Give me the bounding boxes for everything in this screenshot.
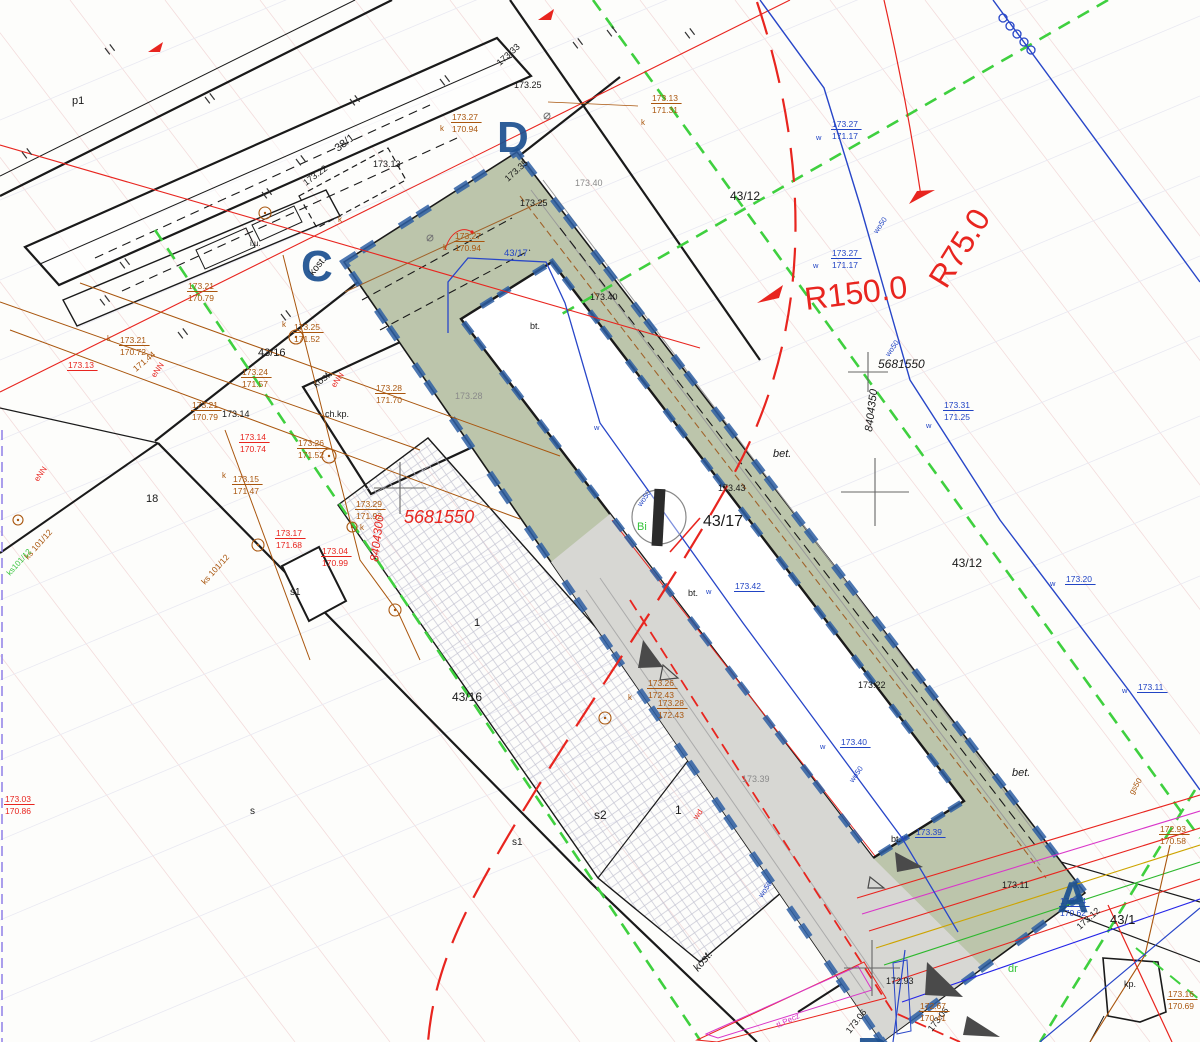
corner-marker-D: D: [497, 113, 529, 162]
svg-text:bt.: bt.: [688, 588, 698, 598]
map-label: bt.: [688, 588, 698, 598]
svg-text:173.40: 173.40: [841, 737, 867, 747]
svg-text:1: 1: [474, 617, 480, 629]
corner-marker-A: A: [1057, 873, 1089, 922]
svg-text:173.24: 173.24: [242, 367, 268, 377]
map-label: bet.: [773, 448, 791, 460]
svg-text:w: w: [705, 587, 712, 596]
svg-text:ch.kp.: ch.kp.: [325, 409, 349, 419]
map-label: 173.28: [455, 391, 483, 401]
svg-text:172.43: 172.43: [658, 710, 684, 720]
map-label: s2: [594, 808, 607, 822]
map-label: ch.kp.: [325, 409, 349, 419]
svg-text:5681550: 5681550: [404, 507, 474, 527]
svg-text:173.17: 173.17: [276, 528, 302, 538]
svg-text:1: 1: [675, 803, 682, 817]
map-label: 173.13: [373, 159, 401, 169]
map-label: 5681550: [404, 507, 474, 527]
svg-text:170.74: 170.74: [240, 444, 266, 454]
svg-text:173.26: 173.26: [298, 438, 324, 448]
svg-text:i.u.: i.u.: [250, 239, 261, 248]
map-label: s1: [290, 587, 301, 598]
svg-text:bt.: bt.: [891, 834, 901, 844]
svg-text:171.68: 171.68: [276, 540, 302, 550]
map-label: 43/16: [258, 347, 286, 359]
svg-text:173.28: 173.28: [455, 391, 483, 401]
svg-text:5681550: 5681550: [878, 357, 925, 371]
svg-text:173.40: 173.40: [590, 292, 618, 302]
map-label: 173.39: [915, 827, 946, 838]
svg-text:173.11: 173.11: [1138, 682, 1164, 692]
manhole-center: [394, 609, 396, 611]
svg-text:171.31: 171.31: [652, 105, 678, 115]
manhole-center: [351, 526, 353, 528]
map-label: 18: [146, 493, 158, 505]
map-label: s: [250, 806, 255, 817]
svg-text:173.28: 173.28: [376, 383, 402, 393]
svg-text:172.93: 172.93: [1160, 824, 1186, 834]
svg-text:173.42: 173.42: [735, 581, 761, 591]
manhole-center: [264, 212, 266, 214]
svg-text:173.20: 173.20: [1066, 574, 1092, 584]
svg-text:w: w: [1121, 686, 1128, 695]
manhole-center: [17, 519, 19, 521]
svg-text:43/17: 43/17: [504, 248, 528, 259]
svg-text:173.25: 173.25: [514, 80, 542, 90]
map-label: 43/1: [1110, 912, 1135, 927]
map-label: w: [815, 133, 822, 142]
svg-text:43/17: 43/17: [703, 513, 743, 530]
map-label: dr: [1008, 963, 1018, 975]
svg-text:w: w: [819, 742, 826, 751]
svg-text:173.39: 173.39: [916, 827, 942, 837]
svg-text:173.22: 173.22: [858, 680, 886, 690]
svg-text:170.94: 170.94: [452, 124, 478, 134]
map-label: 173.11: [1002, 880, 1029, 890]
svg-text:18: 18: [146, 493, 158, 505]
svg-text:173.11: 173.11: [1002, 880, 1029, 890]
manhole-center: [604, 717, 606, 719]
svg-text:173.13: 173.13: [373, 159, 401, 169]
map-label: w: [819, 742, 826, 751]
svg-text:173.27: 173.27: [832, 119, 858, 129]
map-label: w: [1121, 686, 1128, 695]
svg-text:43/12: 43/12: [730, 189, 760, 203]
map-label: bet.: [1012, 767, 1030, 779]
svg-text:170.58: 170.58: [1160, 836, 1186, 846]
map-label: 43/12: [952, 556, 982, 570]
map-label: 172.93: [886, 976, 914, 986]
map-label: i.u.: [250, 239, 261, 248]
svg-text:bet.: bet.: [773, 448, 791, 460]
svg-text:w: w: [925, 421, 932, 430]
map-label: 43/17: [703, 513, 743, 530]
svg-text:w: w: [1049, 579, 1056, 588]
svg-text:173.13: 173.13: [652, 93, 678, 103]
svg-text:173.27: 173.27: [455, 231, 481, 241]
map-label: 173.42: [734, 581, 765, 592]
svg-text:173.21: 173.21: [120, 335, 146, 345]
svg-text:171.57: 171.57: [242, 379, 268, 389]
map-label: kp.: [1124, 979, 1136, 989]
svg-text:173.16: 173.16: [1168, 989, 1194, 999]
svg-text:p1: p1: [72, 95, 84, 107]
map-label: 5681550: [878, 357, 925, 371]
svg-text:173.21: 173.21: [192, 400, 218, 410]
svg-text:173.14: 173.14: [240, 432, 266, 442]
site-plan-map: p138/1173.33173.25173.13173.22i.u.kost.1…: [0, 0, 1200, 1042]
svg-text:170.41: 170.41: [920, 1013, 946, 1023]
svg-text:170.86: 170.86: [5, 806, 31, 816]
svg-text:173.43: 173.43: [718, 483, 746, 493]
svg-text:171.52: 171.52: [294, 334, 320, 344]
map-label: 173.22: [858, 680, 886, 690]
svg-text:173.13: 173.13: [68, 360, 94, 370]
map-label: p1: [72, 95, 84, 107]
svg-text:43/1: 43/1: [1110, 912, 1135, 927]
svg-text:172.93: 172.93: [886, 976, 914, 986]
map-label: 173.20: [1065, 574, 1096, 585]
svg-text:s1: s1: [290, 587, 301, 598]
svg-text:s2: s2: [594, 808, 607, 822]
map-label: 43/12: [730, 189, 760, 203]
map-label: w: [705, 587, 712, 596]
svg-text:173.15: 173.15: [233, 474, 259, 484]
svg-text:173.14: 173.14: [222, 409, 250, 419]
svg-text:43/12: 43/12: [952, 556, 982, 570]
svg-text:Bi: Bi: [637, 521, 647, 533]
svg-text:171.47: 171.47: [233, 486, 259, 496]
svg-text:173.21: 173.21: [188, 281, 214, 291]
svg-text:173.40: 173.40: [575, 178, 603, 188]
map-label: w: [812, 261, 819, 270]
svg-text:173.03: 173.03: [5, 794, 31, 804]
svg-text:171.52: 171.52: [298, 450, 324, 460]
map-label: 173.40: [575, 178, 603, 188]
map-label: 1: [474, 617, 480, 629]
svg-text:173.25: 173.25: [520, 198, 548, 208]
svg-text:43/16: 43/16: [452, 690, 482, 704]
corner-marker-B: B: [857, 1029, 889, 1042]
svg-text:170.99: 170.99: [322, 558, 348, 568]
map-label: 173.39: [742, 774, 770, 784]
svg-text:171.17: 171.17: [832, 131, 858, 141]
map-label: bt.: [530, 321, 540, 331]
map-stage: p138/1173.33173.25173.13173.22i.u.kost.1…: [0, 0, 1200, 1042]
svg-text:173.27: 173.27: [832, 248, 858, 258]
map-label: w: [1049, 579, 1056, 588]
corner-marker-C: C: [301, 242, 333, 291]
svg-text:s: s: [250, 806, 255, 817]
svg-text:171.17: 171.17: [832, 260, 858, 270]
map-label: w: [925, 421, 932, 430]
svg-text:173.28: 173.28: [658, 698, 684, 708]
map-label: 43/17: [504, 248, 528, 259]
svg-text:w: w: [815, 133, 822, 142]
map-label: 173.11: [1137, 682, 1168, 693]
map-label: 173.40: [840, 737, 871, 748]
map-label: bt.: [891, 834, 901, 844]
map-label: 173.25: [520, 198, 548, 208]
map-label: 173.43: [718, 483, 746, 493]
map-label: 173.40: [590, 292, 618, 302]
svg-text:w: w: [593, 423, 600, 432]
map-label: w: [901, 833, 908, 842]
manhole-center: [328, 455, 330, 457]
map-label: 173.14: [222, 409, 250, 419]
svg-text:171.25: 171.25: [944, 412, 970, 422]
manhole-center: [257, 544, 259, 546]
svg-text:170.79: 170.79: [188, 293, 214, 303]
svg-text:w: w: [901, 833, 908, 842]
svg-text:bt.: bt.: [530, 321, 540, 331]
svg-text:170.94: 170.94: [455, 243, 481, 253]
map-label: Bi: [637, 521, 647, 533]
svg-text:170.69: 170.69: [1168, 1001, 1194, 1011]
svg-text:dr: dr: [1008, 963, 1018, 975]
svg-text:172.67: 172.67: [920, 1001, 946, 1011]
svg-text:w: w: [812, 261, 819, 270]
svg-text:kp.: kp.: [1124, 979, 1136, 989]
map-label: 173.13: [67, 360, 98, 371]
svg-text:173.27: 173.27: [452, 112, 478, 122]
svg-text:s1: s1: [512, 837, 523, 848]
svg-text:173.31: 173.31: [944, 400, 970, 410]
svg-text:173.04: 173.04: [322, 546, 348, 556]
map-label: w: [593, 423, 600, 432]
svg-text:bet.: bet.: [1012, 767, 1030, 779]
svg-text:173.29: 173.29: [356, 499, 382, 509]
svg-text:173.26: 173.26: [648, 678, 674, 688]
map-label: 173.25: [514, 80, 542, 90]
svg-text:43/16: 43/16: [258, 347, 286, 359]
svg-text:171.70: 171.70: [376, 395, 402, 405]
svg-text:173.25: 173.25: [294, 322, 320, 332]
map-label: 1: [675, 803, 682, 817]
map-label: 43/16: [452, 690, 482, 704]
svg-text:170.79: 170.79: [192, 412, 218, 422]
map-label: s1: [512, 837, 523, 848]
svg-text:173.39: 173.39: [742, 774, 770, 784]
